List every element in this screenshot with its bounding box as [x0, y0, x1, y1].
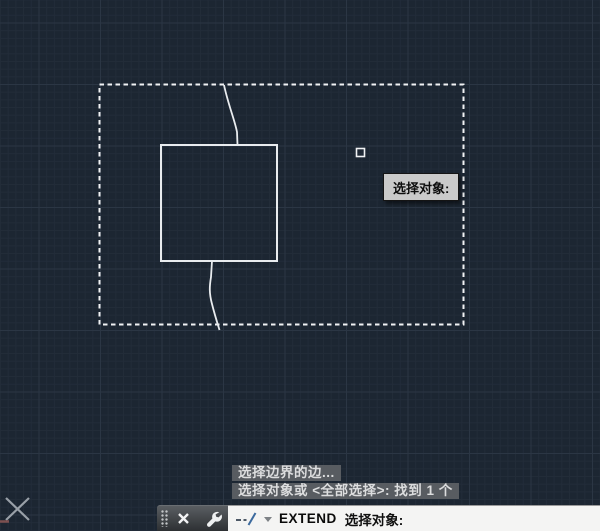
extend-command-icon [235, 511, 258, 527]
chevron-down-icon[interactable] [264, 517, 272, 522]
boundary-square[interactable] [161, 145, 277, 261]
autocad-viewport: 选择对象: 选择边界的边... 选择对象或 <全部选择>: 找到 1 个 [0, 0, 600, 531]
upper-spline[interactable] [224, 85, 238, 145]
ucs-icon [0, 498, 29, 522]
command-prompt-text: 选择对象: [345, 509, 404, 529]
command-bar-tools [157, 505, 228, 531]
grip-handle-icon[interactable] [161, 510, 168, 527]
command-input-area[interactable]: EXTEND 选择对象: [228, 505, 600, 531]
pickbox-cursor [357, 149, 365, 157]
cursor-tooltip: 选择对象: [383, 173, 459, 201]
wrench-icon [205, 510, 222, 527]
close-icon [177, 512, 190, 525]
close-button[interactable] [168, 506, 198, 531]
cursor-tooltip-text: 选择对象: [393, 178, 449, 197]
command-bar: EXTEND 选择对象: [157, 505, 600, 531]
command-history-line-2: 选择对象或 <全部选择>: 找到 1 个 [232, 483, 459, 499]
customize-button[interactable] [198, 506, 228, 531]
lower-spline[interactable] [210, 261, 220, 330]
command-history-line-1: 选择边界的边... [232, 465, 341, 481]
active-command-name: EXTEND [279, 511, 337, 526]
selection-window-dashed-rectangle [100, 85, 464, 325]
drawing-canvas[interactable] [0, 0, 600, 531]
